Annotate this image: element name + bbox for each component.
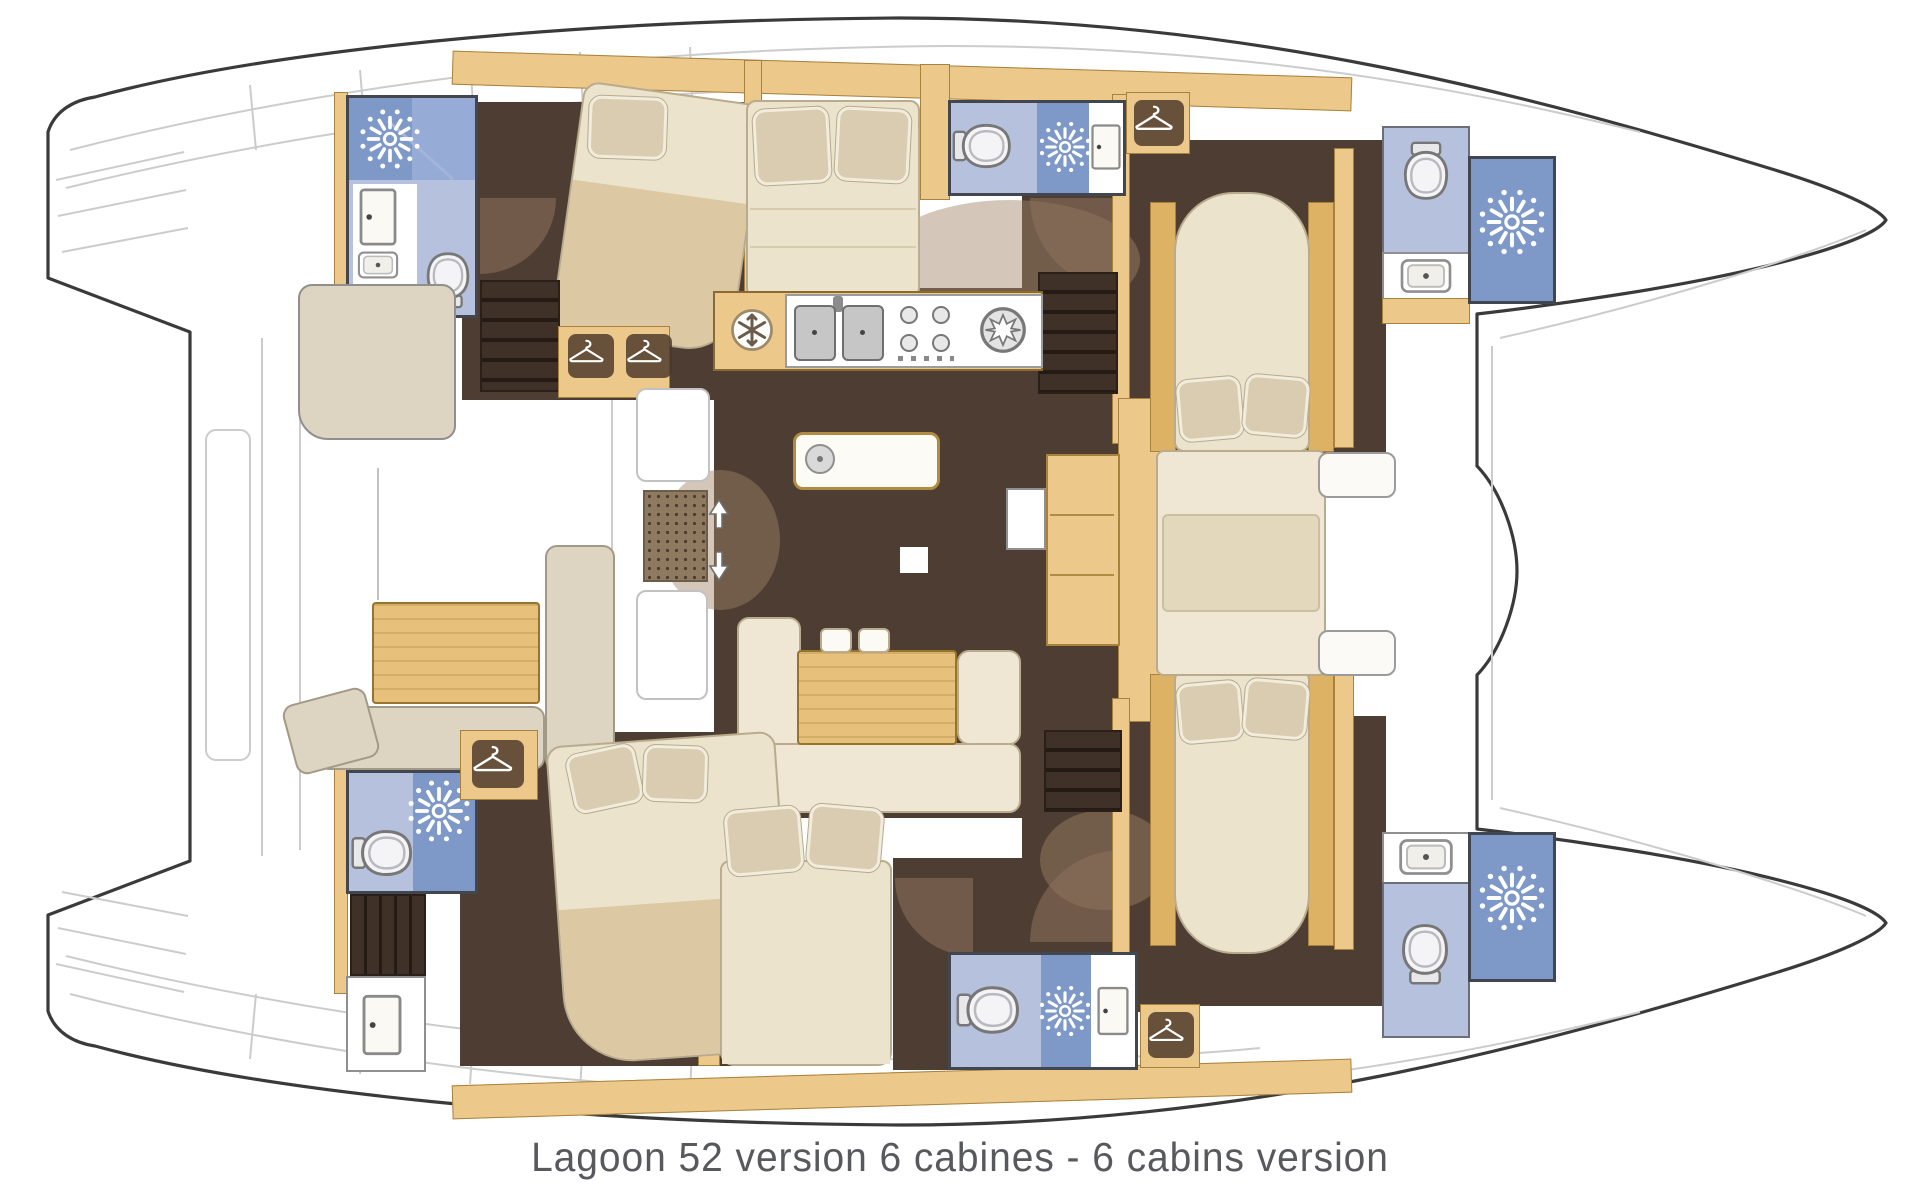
companionway-arrows-icon [708, 498, 730, 582]
settee-armrest [1318, 630, 1396, 676]
sheet-line [750, 246, 916, 248]
stairs-port-fwd [1038, 272, 1118, 394]
toilet-icon [1398, 922, 1452, 988]
shelf-line [1050, 514, 1114, 516]
mast-post [900, 547, 928, 573]
bed-pillow [834, 106, 912, 184]
bed-stbd-fwd [1150, 666, 1334, 956]
bed-port-mid [746, 100, 922, 298]
bed-pillow [642, 745, 708, 803]
wall [1334, 148, 1354, 448]
bed-pillow [1242, 677, 1311, 740]
drain-dot [812, 330, 817, 335]
bed-stbd-mid [718, 804, 896, 1068]
sheet-line [750, 208, 916, 210]
shower-icon [1037, 119, 1093, 175]
stove-knobs [898, 356, 954, 361]
burner-icon [978, 305, 1028, 355]
cockpit-table [372, 602, 540, 704]
bed-sheet [722, 954, 890, 1064]
wall [1334, 670, 1354, 950]
stove-burner [900, 306, 918, 324]
fwd-settee-cushion [1162, 514, 1320, 612]
dinette-sofa-right [957, 650, 1021, 745]
bathroom-stbd-mid [948, 952, 1138, 1070]
bed-pillow [752, 106, 832, 186]
wall [920, 64, 950, 200]
wardrobe-hanger-icon [626, 334, 672, 378]
caption: Lagoon 52 version 6 cabines - 6 cabins v… [48, 1134, 1872, 1181]
stool [858, 628, 890, 653]
stool [820, 628, 852, 653]
stove-burner [900, 334, 918, 352]
shower-icon [1037, 983, 1093, 1039]
hatch [1006, 488, 1046, 550]
cabinet [1382, 298, 1470, 324]
island-mount-dot [817, 456, 823, 462]
door-glazing [636, 388, 710, 482]
bed-pillow [805, 803, 884, 873]
bed-rail [1150, 674, 1176, 946]
wardrobe-hanger-icon [1148, 1012, 1194, 1058]
stove-burner [932, 334, 950, 352]
shower-icon [1476, 862, 1548, 934]
wardrobe-hanger-icon [568, 334, 614, 378]
fridge-icon [729, 307, 775, 353]
bathroom-stbd-aft [346, 770, 478, 894]
dinette-table [797, 650, 957, 745]
bed-pillow [1176, 679, 1245, 744]
toilet-icon [950, 120, 1012, 172]
wardrobe-hanger-icon [1134, 100, 1184, 146]
nav-cabinet [1046, 454, 1120, 646]
toilet-icon [1400, 138, 1452, 202]
stairs-stbd-aft [350, 894, 426, 976]
stairs-stbd-fwd [1044, 730, 1122, 812]
door-icon [362, 990, 402, 1060]
bed-pillow [723, 805, 804, 877]
bed-pillow [1175, 375, 1244, 442]
bed-rail [1150, 202, 1176, 452]
shower-icon [357, 106, 423, 172]
wardrobe-hanger-icon [472, 740, 524, 788]
settee-armrest [1318, 452, 1396, 498]
door-icon [359, 188, 397, 246]
shower-icon [1476, 186, 1548, 258]
bed-rail [1308, 674, 1334, 946]
drain-dot [860, 330, 865, 335]
cockpit-lounge-pad [298, 284, 456, 440]
toilet-icon [954, 982, 1020, 1038]
bed-rail [1308, 202, 1334, 452]
cockpit-divider-line [377, 468, 379, 600]
bed-port-fwd [1150, 192, 1334, 458]
sink-icon [357, 250, 399, 280]
floorplan-canvas: Lagoon 52 version 6 cabines - 6 cabins v… [0, 0, 1920, 1188]
bed-pillow [588, 95, 668, 160]
sink-icon [1398, 838, 1454, 876]
door-glazing [636, 590, 708, 700]
stairs-port-aft [480, 280, 560, 392]
door-icon [1097, 965, 1129, 1057]
door-icon [1091, 111, 1121, 183]
stove-burner [932, 306, 950, 324]
sink-icon [1398, 258, 1454, 294]
shelf-line [1050, 574, 1114, 576]
entry-mat [643, 490, 708, 582]
bathroom-port-mid [948, 100, 1126, 196]
bed-pillow [1242, 373, 1311, 438]
toilet-icon [349, 825, 413, 881]
